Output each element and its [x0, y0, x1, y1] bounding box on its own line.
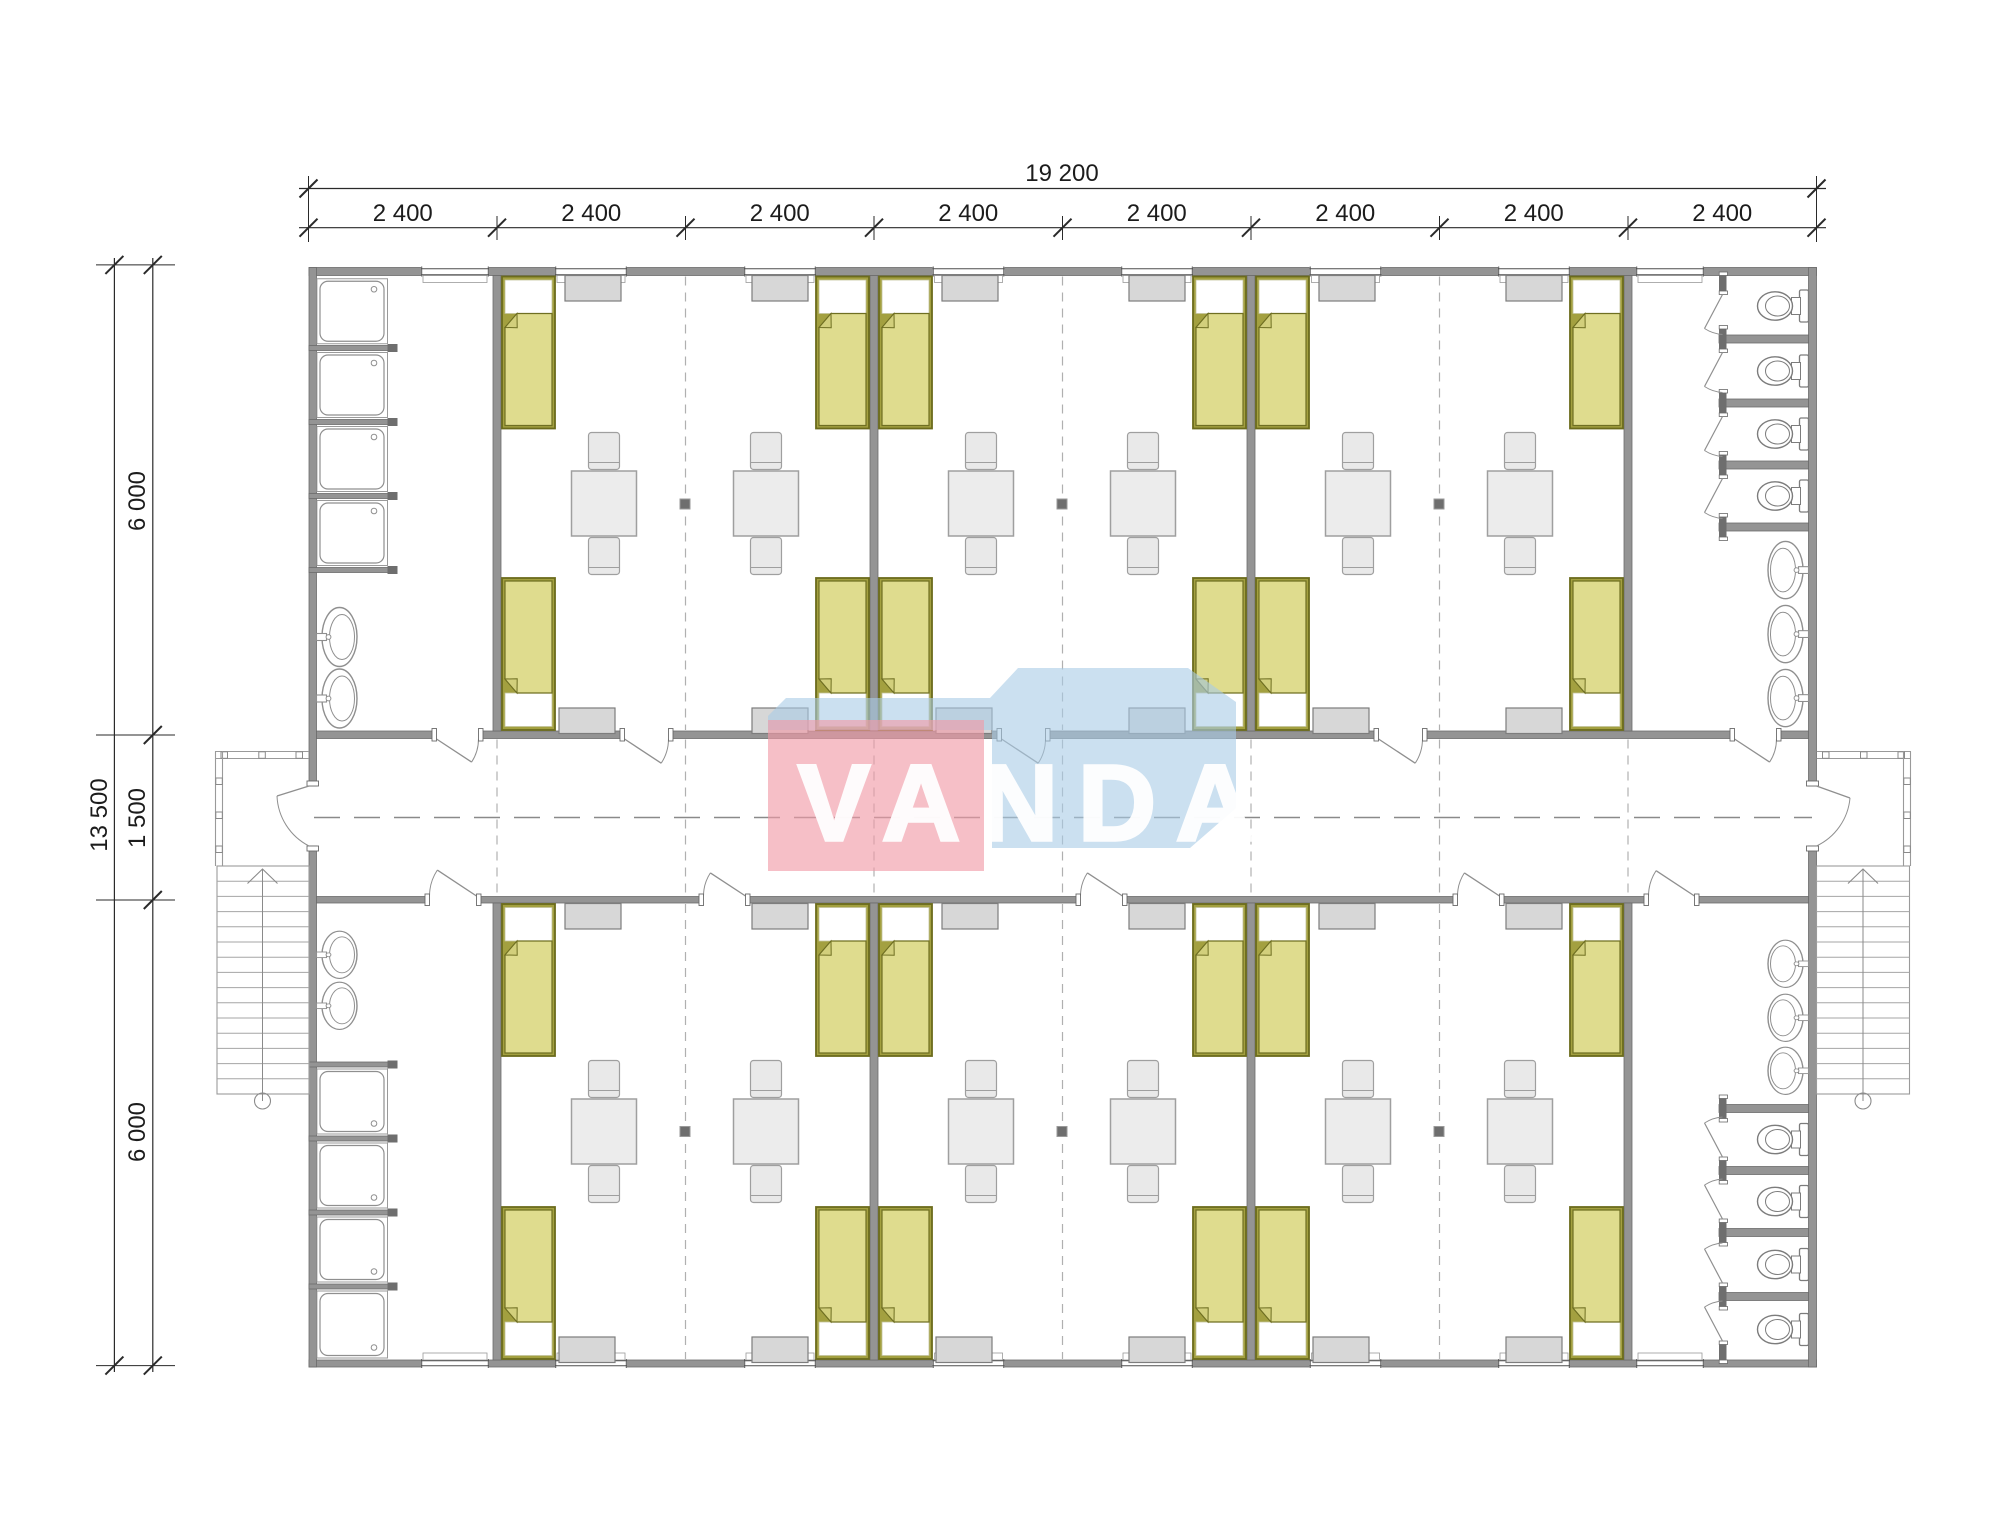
svg-text:2 400: 2 400	[561, 200, 621, 227]
svg-text:VANDA: VANDA	[798, 742, 1274, 863]
svg-text:2 400: 2 400	[1315, 200, 1375, 227]
svg-text:1 500: 1 500	[124, 788, 151, 848]
svg-text:2 400: 2 400	[938, 200, 998, 227]
svg-text:6 000: 6 000	[124, 1102, 151, 1162]
svg-text:2 400: 2 400	[750, 200, 810, 227]
svg-text:2 400: 2 400	[1692, 200, 1752, 227]
svg-text:6 000: 6 000	[124, 471, 151, 531]
svg-text:19 200: 19 200	[1025, 160, 1098, 187]
svg-text:13 500: 13 500	[86, 778, 113, 851]
svg-text:2 400: 2 400	[1127, 200, 1187, 227]
svg-text:2 400: 2 400	[1504, 200, 1564, 227]
svg-text:2 400: 2 400	[373, 200, 433, 227]
